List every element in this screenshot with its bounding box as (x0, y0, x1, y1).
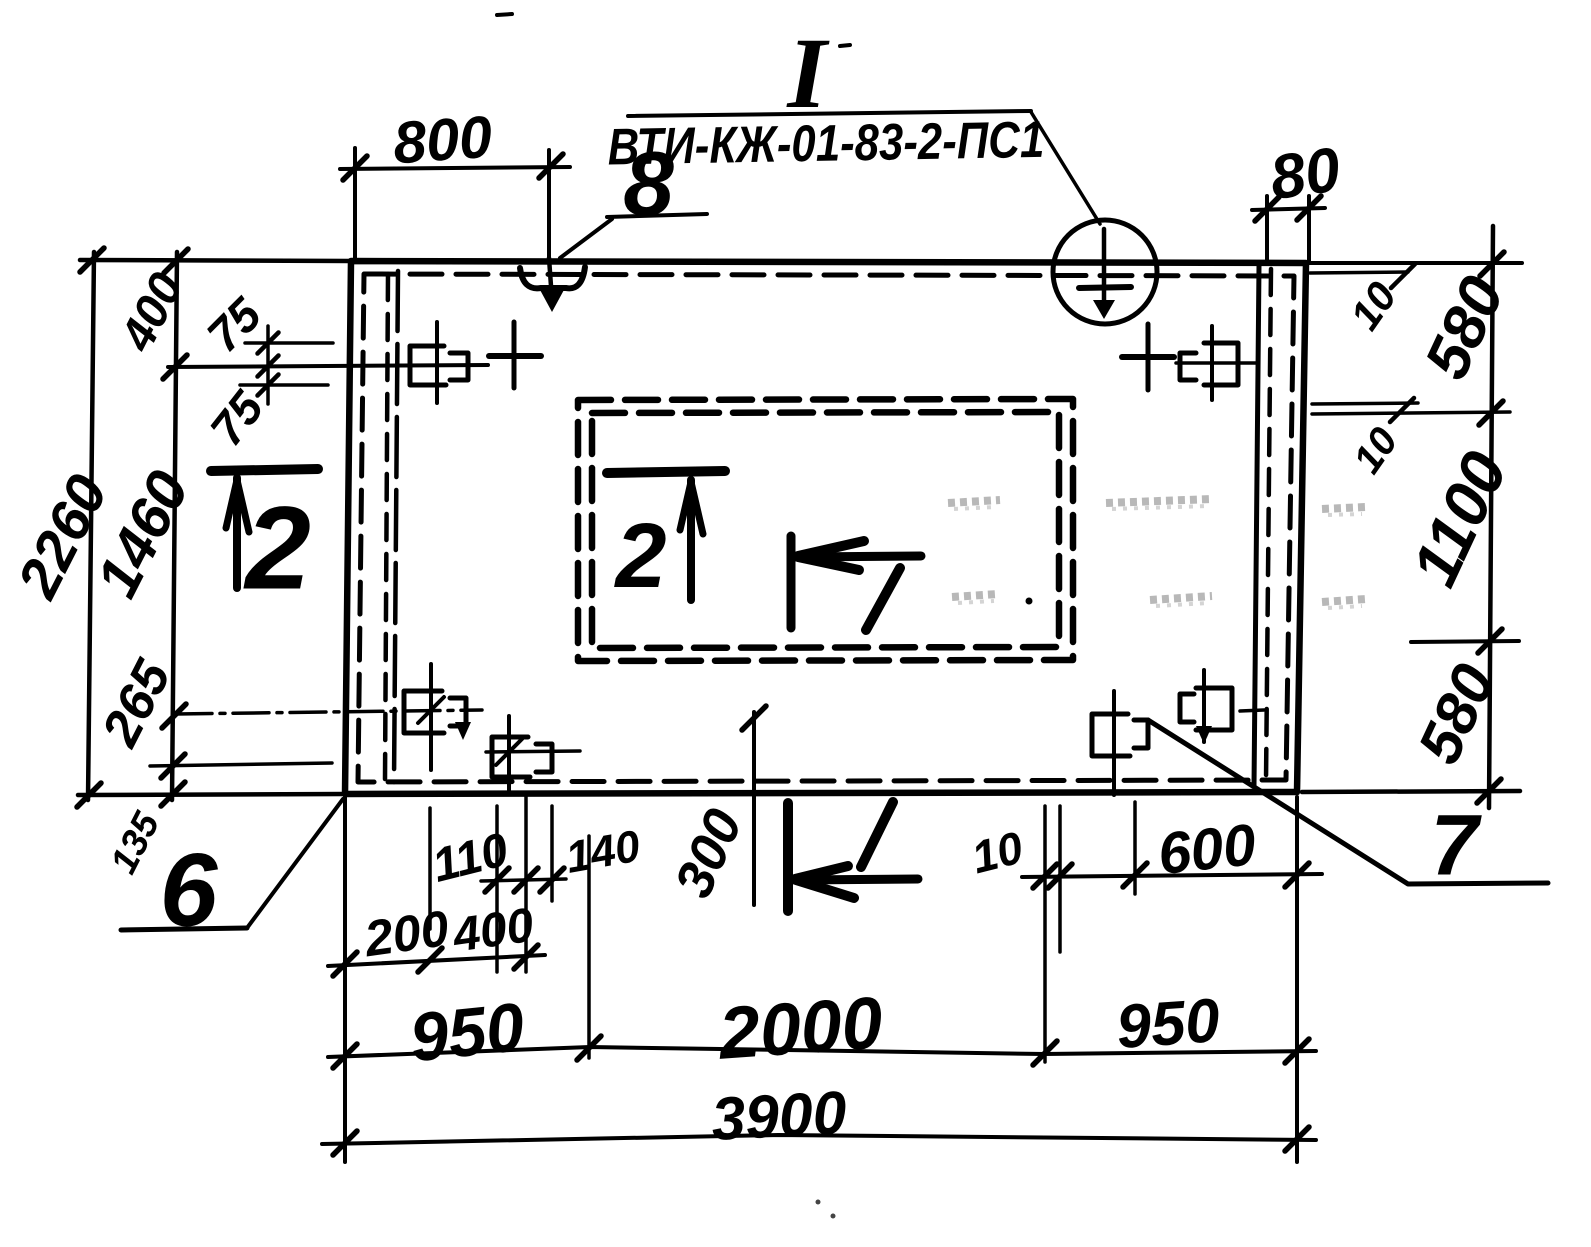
svg-text:2: 2 (243, 482, 311, 614)
svg-text:600: 600 (1155, 812, 1259, 887)
svg-text:80: 80 (1266, 134, 1345, 213)
svg-text:3900: 3900 (710, 1078, 849, 1153)
svg-text:2000: 2000 (714, 980, 885, 1074)
svg-text:2: 2 (614, 505, 667, 607)
svg-text:950: 950 (1114, 986, 1222, 1062)
svg-text:950: 950 (406, 989, 527, 1076)
svg-text:800: 800 (391, 103, 494, 177)
svg-text:8: 8 (623, 134, 674, 235)
svg-text:7: 7 (1431, 798, 1483, 894)
svg-text:400: 400 (449, 898, 537, 963)
svg-text:200: 200 (360, 899, 452, 967)
